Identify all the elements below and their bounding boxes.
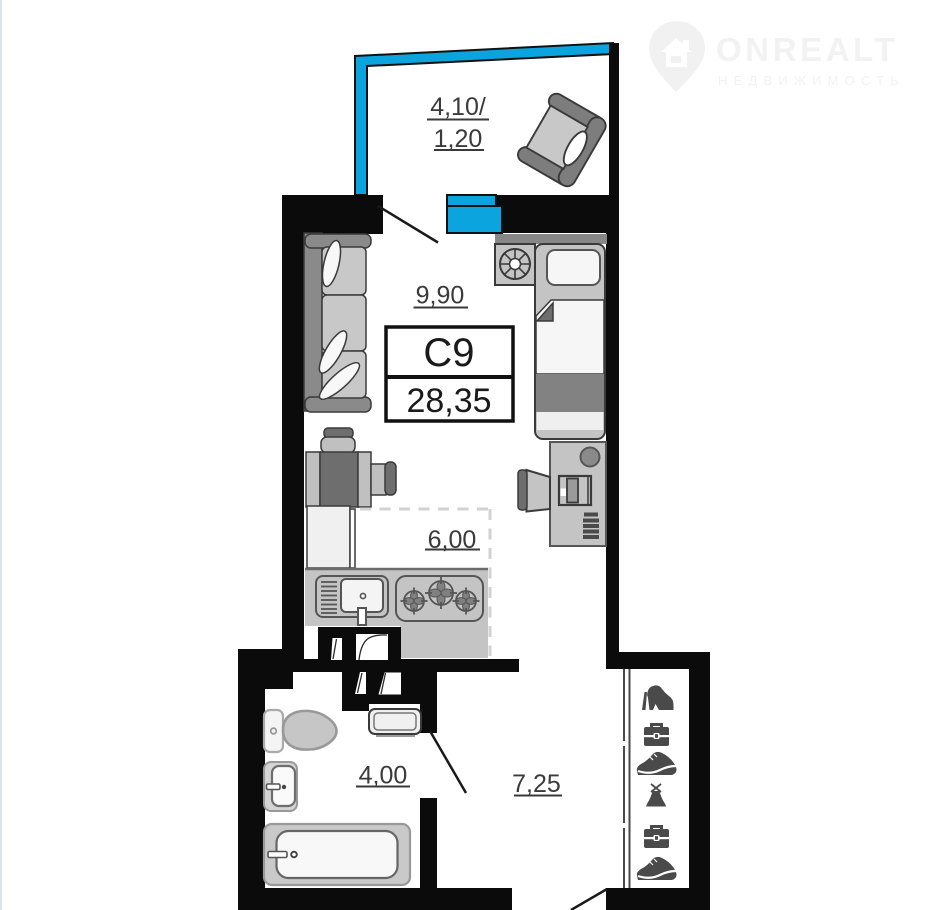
svg-text:4,10/: 4,10/ [430, 93, 486, 121]
svg-text:9,90: 9,90 [416, 282, 465, 310]
svg-text:ONREALT: ONREALT [716, 31, 898, 68]
svg-text:28,35: 28,35 [406, 382, 491, 420]
svg-text:С9: С9 [423, 331, 474, 375]
svg-text:НЕДВИЖИМОСТЬ: НЕДВИЖИМОСТЬ [718, 73, 905, 88]
svg-text:7,25: 7,25 [512, 770, 561, 798]
svg-text:4,00: 4,00 [359, 762, 408, 790]
svg-text:1,20: 1,20 [434, 125, 483, 153]
